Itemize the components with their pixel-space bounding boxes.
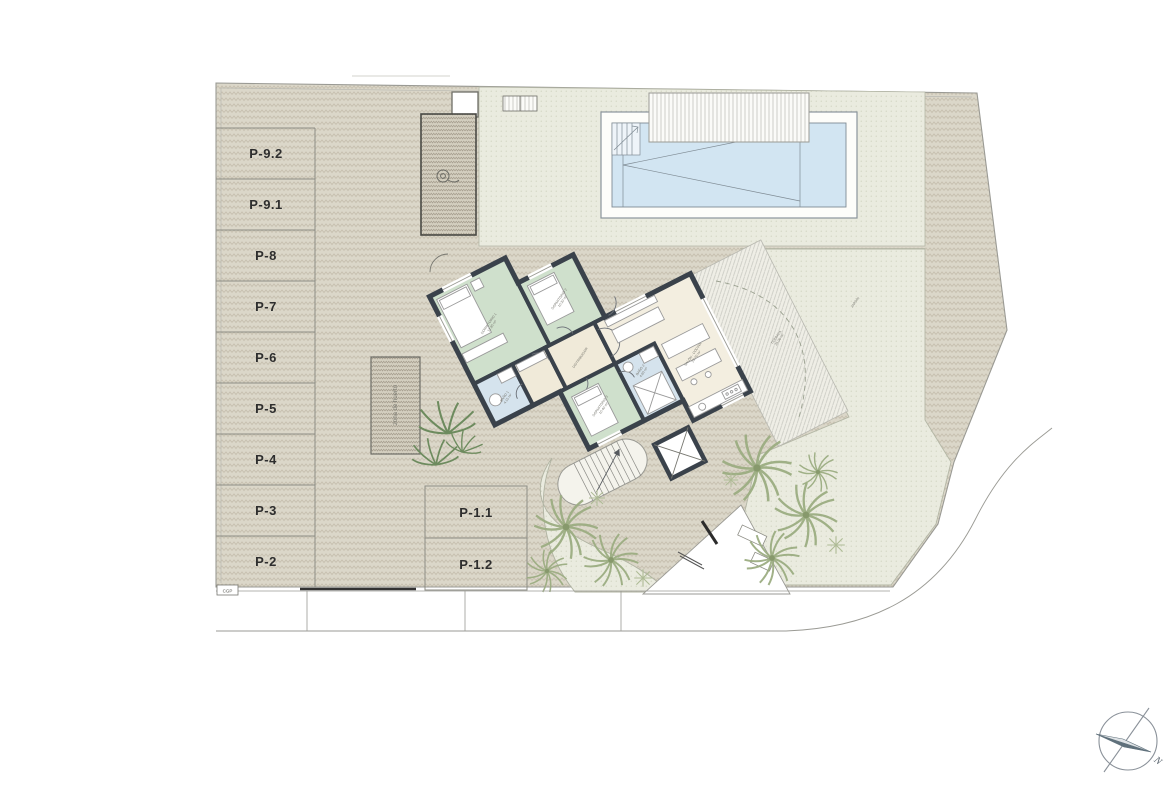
ac-units [503, 96, 537, 111]
parking-space-label: P-9.2 [249, 146, 283, 161]
compass-icon: N [1096, 708, 1165, 772]
store-pergola [421, 114, 476, 235]
parking-space-label: P-1.2 [459, 557, 493, 572]
parking-space-label: P-4 [255, 452, 277, 467]
cgp-box: CGP [217, 585, 238, 595]
pool-pergola [649, 93, 809, 142]
planter-box: zona de huerto [371, 357, 420, 454]
parking-space-label: P-1.1 [459, 505, 493, 520]
site-plan-canvas: JARDÍN zona de huerto P-9.2 P-9.1 P-8 [0, 0, 1170, 785]
parking-space-label: P-7 [255, 299, 277, 314]
site-plan: JARDÍN zona de huerto P-9.2 P-9.1 P-8 [0, 0, 1170, 785]
pool-steps [612, 123, 640, 155]
parking-space-label: P-6 [255, 350, 277, 365]
cgp-label: CGP [223, 589, 233, 594]
parking-space-label: P-9.1 [249, 197, 283, 212]
planter-label: zona de huerto [393, 384, 399, 425]
parking-space-label: P-8 [255, 248, 277, 263]
parking-space-label: P-3 [255, 503, 277, 518]
pool-garden [452, 87, 925, 249]
parking-space-label: P-2 [255, 554, 277, 569]
parking-space-label: P-5 [255, 401, 277, 416]
